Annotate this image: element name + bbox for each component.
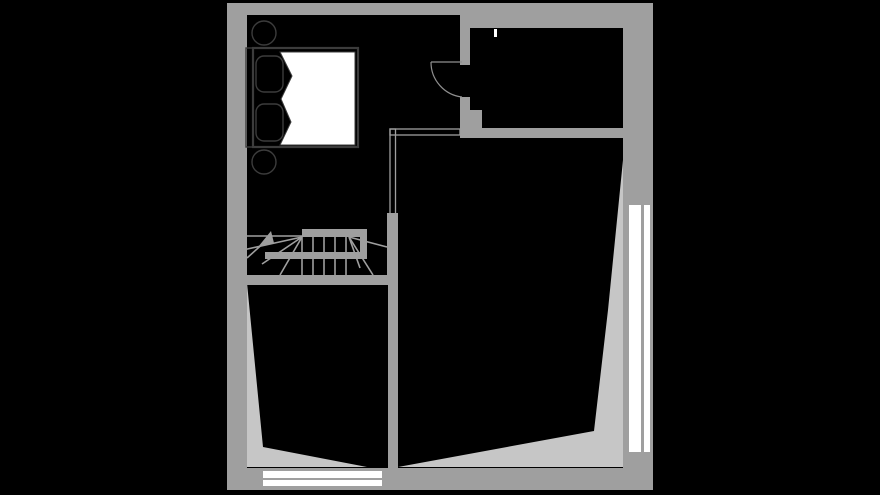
- wall-outer-left: [227, 3, 247, 490]
- stair-top-rail-bar: [302, 229, 367, 237]
- wall-stairs-bottom: [243, 275, 398, 285]
- window-bottom-pane-inner: [263, 480, 382, 486]
- bed-duvet-fill: [280, 52, 355, 145]
- floor-plan-drawing: [0, 0, 880, 495]
- wall-mid-horizontal: [460, 128, 623, 138]
- window-right-pane-inner: [644, 205, 650, 452]
- stair-inner-rail-bar: [265, 252, 367, 259]
- wall-marker-top: [494, 29, 497, 37]
- plan-background: [0, 0, 880, 495]
- wall-door-upper-jamb: [460, 15, 470, 65]
- window-bottom-pane-outer: [263, 471, 382, 478]
- window-right-pane-outer: [629, 205, 641, 452]
- wall-top-right-room: [460, 3, 628, 28]
- wall-door-step-block: [460, 110, 482, 130]
- wall-mid-vertical: [388, 285, 398, 468]
- wall-stair-newel-post: [387, 213, 398, 277]
- bed-duvet: [280, 52, 355, 145]
- floor-plan-canvas: [0, 0, 880, 495]
